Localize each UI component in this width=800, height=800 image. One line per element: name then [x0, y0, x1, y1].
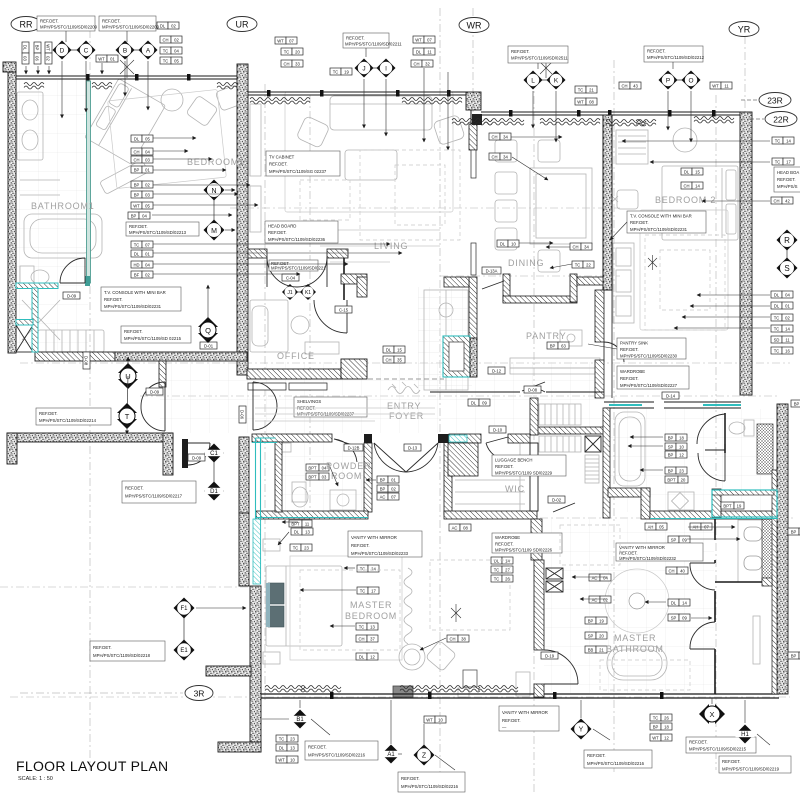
svg-text:02: 02 [145, 182, 150, 187]
svg-text:REF.DET.: REF.DET. [689, 740, 708, 745]
svg-text:DL: DL [160, 23, 166, 28]
svg-text:D-13: D-13 [408, 445, 418, 450]
svg-text:13: 13 [305, 529, 310, 534]
svg-text:D-14: D-14 [666, 393, 676, 398]
svg-text:CH: CH [133, 157, 139, 162]
svg-text:BP: BP [131, 213, 137, 218]
svg-text:REF.DET.: REF.DET. [93, 645, 112, 650]
svg-text:WT: WT [652, 735, 659, 740]
svg-text:OFFICE: OFFICE [277, 351, 315, 361]
svg-text:34: 34 [503, 154, 508, 159]
svg-text:08: 08 [463, 525, 468, 530]
svg-text:14: 14 [695, 183, 700, 188]
svg-text:MPH/PS/STC/1109/SD/02214: MPH/PS/STC/1109/SD/02214 [39, 418, 97, 423]
svg-text:REF.DET.: REF.DET. [495, 541, 514, 546]
svg-text:WT: WT [426, 717, 433, 722]
svg-text:CH: CH [668, 568, 674, 573]
svg-text:BEDROOM: BEDROOM [345, 611, 397, 621]
svg-text:REF.DET.: REF.DET. [40, 18, 59, 23]
svg-text:J1: J1 [287, 290, 293, 296]
svg-text:14: 14 [786, 138, 791, 143]
svg-text:3R: 3R [194, 689, 205, 699]
svg-text:DL: DL [23, 45, 28, 51]
svg-text:T: T [125, 412, 130, 421]
svg-text:E1: E1 [180, 648, 188, 654]
svg-text:MPH/PS/STC/1109/SD/02216: MPH/PS/STC/1109/SD/02216 [308, 753, 366, 758]
svg-text:REF.DET.: REF.DET. [630, 220, 649, 225]
svg-text:MPH/PS/STC/1109/SD/02233: MPH/PS/STC/1109/SD/02233 [351, 551, 409, 556]
svg-text:22: 22 [586, 262, 591, 267]
svg-text:MPH/PS/STC/1109/SG 02237: MPH/PS/STC/1109/SG 02237 [269, 169, 327, 174]
svg-text:WT: WT [278, 757, 285, 762]
svg-text:BPT: BPT [308, 474, 317, 479]
svg-text:09: 09 [482, 400, 487, 405]
svg-text:REF.DET.: REF.DET. [39, 411, 58, 416]
svg-text:BP: BP [668, 468, 674, 473]
svg-text:MPH/PS/STC/1109/SD/02230: MPH/PS/STC/1109/SD/02230 [620, 354, 678, 359]
svg-text:AC: AC [592, 575, 598, 580]
svg-text:—: — [502, 725, 507, 730]
svg-text:19: 19 [737, 503, 742, 508]
svg-text:DL: DL [774, 292, 780, 297]
svg-text:CH: CH [683, 183, 689, 188]
svg-text:REF.DET.: REF.DET. [620, 347, 639, 352]
svg-text:11: 11 [724, 83, 729, 88]
svg-text:TC: TC [774, 326, 780, 331]
svg-text:TC: TC [333, 69, 339, 74]
svg-text:DL: DL [671, 600, 677, 605]
svg-text:WR: WR [467, 21, 482, 31]
svg-text:BP: BP [134, 192, 140, 197]
svg-text:TC: TC [578, 87, 584, 92]
svg-text:VANITY WITH MIRROR: VANITY WITH MIRROR [619, 545, 665, 550]
svg-text:02: 02 [174, 37, 179, 42]
svg-text:A1: A1 [387, 752, 395, 758]
svg-text:04: 04 [145, 149, 150, 154]
svg-text:17: 17 [371, 588, 376, 593]
svg-text:05: 05 [145, 136, 150, 141]
svg-text:BPT: BPT [667, 477, 676, 482]
svg-text:M: M [211, 228, 217, 235]
svg-text:01: 01 [785, 303, 790, 308]
svg-text:DL: DL [416, 49, 422, 54]
svg-text:MPH/PS/STC/1109/SD/02511: MPH/PS/STC/1109/SD/02511 [511, 56, 568, 61]
svg-text:22R: 22R [773, 115, 789, 125]
svg-text:ENTRY: ENTRY [387, 401, 421, 411]
svg-text:DL: DL [494, 558, 500, 563]
svg-text:BF: BF [134, 272, 140, 277]
svg-text:VANITY WITH MIRROR: VANITY WITH MIRROR [502, 710, 548, 715]
svg-text:MPH/PS/STC/1109/SD/0221: MPH/PS/STC/1109/SD/0221 [271, 265, 326, 270]
svg-text:13: 13 [370, 624, 375, 629]
svg-text:04: 04 [785, 292, 790, 297]
svg-text:REF.DET.: REF.DET. [647, 49, 666, 54]
svg-text:REF.DET.: REF.DET. [502, 718, 521, 723]
svg-text:09: 09 [682, 615, 687, 620]
svg-text:18: 18 [664, 724, 669, 729]
svg-text:CH: CH [621, 83, 627, 88]
svg-text:05: 05 [174, 58, 179, 63]
svg-text:BP: BP [35, 45, 40, 51]
svg-text:09: 09 [682, 537, 687, 542]
svg-text:WT: WT [133, 203, 140, 208]
svg-text:04: 04 [603, 575, 608, 580]
svg-text:WARDROBE: WARDROBE [620, 369, 645, 374]
svg-text:MPH/PS/STC/1109/SD/02232: MPH/PS/STC/1109/SD/02232 [619, 556, 677, 561]
svg-text:21: 21 [599, 647, 604, 652]
svg-text:WT: WT [712, 83, 719, 88]
svg-text:P: P [666, 77, 670, 84]
svg-text:34: 34 [584, 244, 589, 249]
svg-text:D-08: D-08 [84, 356, 89, 366]
svg-text:MPH/PS/STC/1109/SD/02236: MPH/PS/STC/1109/SD/02236 [268, 237, 326, 242]
svg-text:WT: WT [46, 44, 51, 51]
svg-text:15: 15 [397, 347, 402, 352]
svg-text:H1: H1 [741, 732, 749, 738]
svg-text:DL: DL [684, 169, 690, 174]
svg-text:D-08: D-08 [528, 387, 538, 392]
svg-text:REF.DET.: REF.DET. [511, 49, 530, 54]
svg-text:REF.DET.: REF.DET. [269, 162, 288, 167]
svg-text:CH: CH [358, 636, 364, 641]
svg-text:FOYER: FOYER [389, 411, 424, 421]
svg-text:21: 21 [589, 87, 594, 92]
svg-text:MPH/PS/STC/1109/SD/02216: MPH/PS/STC/1109/SD/02216 [401, 784, 459, 789]
svg-text:X: X [709, 710, 714, 719]
svg-text:MPH/PS/STC/1109 SD/02229: MPH/PS/STC/1109 SD/02229 [495, 471, 553, 476]
svg-text:VANITY WITH MIRROR: VANITY WITH MIRROR [351, 535, 397, 540]
svg-text:19: 19 [599, 618, 604, 623]
svg-text:C-04: C-04 [286, 275, 296, 280]
svg-text:04: 04 [174, 48, 179, 53]
svg-text:19: 19 [344, 69, 349, 74]
svg-text:02: 02 [785, 315, 790, 320]
svg-text:DL: DL [134, 136, 140, 141]
svg-text:RR: RR [20, 20, 33, 30]
svg-text:38: 38 [461, 636, 466, 641]
svg-text:02: 02 [603, 597, 608, 602]
svg-text:17: 17 [786, 159, 791, 164]
svg-text:CH: CH [491, 134, 497, 139]
svg-text:BPT: BPT [723, 503, 732, 508]
svg-text:C-15: C-15 [339, 307, 349, 312]
svg-text:01: 01 [391, 477, 396, 482]
svg-text:37: 37 [370, 636, 375, 641]
svg-text:06: 06 [35, 56, 40, 61]
svg-text:REF.DET.: REF.DET. [620, 376, 639, 381]
svg-text:MPH/PS/STC/1109/SD 02215: MPH/PS/STC/1109/SD 02215 [124, 336, 182, 341]
svg-text:MPH/PS/STC/1109/SD/02218: MPH/PS/STC/1109/SD/02218 [93, 653, 151, 658]
svg-text:TC: TC [293, 545, 299, 550]
svg-text:12: 12 [370, 654, 375, 659]
svg-text:REF.DET.: REF.DET. [102, 18, 121, 23]
svg-text:BPT: BPT [308, 465, 317, 470]
svg-text:MPH/PS/STC/1109/SD/02231: MPH/PS/STC/1109/SD/02231 [630, 227, 688, 232]
svg-text:TC: TC [774, 348, 780, 353]
svg-text:REF.DET.: REF.DET. [125, 486, 144, 491]
svg-text:F1: F1 [180, 606, 188, 612]
svg-text:35: 35 [397, 357, 402, 362]
svg-text:42: 42 [785, 198, 790, 203]
svg-text:DL: DL [500, 241, 506, 246]
svg-text:15: 15 [695, 169, 700, 174]
svg-text:MPH/PS/STC/1109/SD/02213: MPH/PS/STC/1109/SD/02213 [129, 230, 187, 235]
svg-text:05: 05 [659, 524, 664, 529]
svg-text:SP: SP [671, 615, 677, 620]
svg-text:REF.DET.: REF.DET. [124, 329, 143, 334]
svg-text:03: 03 [23, 56, 28, 61]
svg-text:REF.DET.: REF.DET. [495, 464, 514, 469]
svg-text:WT: WT [415, 37, 422, 42]
svg-text:REF.DET.: REF.DET. [777, 177, 796, 182]
svg-text:SD: SD [774, 337, 780, 342]
svg-text:CH: CH [133, 149, 139, 154]
svg-text:CH: CH [773, 198, 779, 203]
svg-text:BEDROOM1: BEDROOM1 [187, 157, 245, 167]
svg-text:43: 43 [633, 83, 638, 88]
svg-text:MPH/PS/STC/1109 SD/02226: MPH/PS/STC/1109 SD/02226 [495, 548, 553, 553]
svg-text:C1: C1 [210, 451, 218, 457]
svg-text:CH: CH [385, 357, 391, 362]
svg-text:BP: BP [134, 182, 140, 187]
svg-text:R: R [784, 236, 790, 245]
svg-text:10: 10 [679, 444, 684, 449]
svg-text:D-01: D-01 [204, 343, 214, 348]
svg-text:D-19: D-19 [545, 653, 555, 658]
svg-text:DL: DL [279, 745, 285, 750]
svg-text:16: 16 [785, 348, 790, 353]
svg-text:REF.DET.: REF.DET. [619, 551, 638, 556]
svg-text:01: 01 [145, 167, 150, 172]
svg-text:SCALE: 1 : 50: SCALE: 1 : 50 [18, 776, 53, 782]
svg-text:BP: BP [668, 452, 674, 457]
svg-text:T.V. CONSOLE WITH MINI BAR: T.V. CONSOLE WITH MINI BAR [630, 214, 692, 219]
svg-text:MPH/PS/STC/1109/SD/02217: MPH/PS/STC/1109/SD/02217 [125, 494, 183, 499]
svg-text:23: 23 [290, 736, 295, 741]
svg-text:AC: AC [592, 597, 598, 602]
svg-text:B1: B1 [296, 717, 304, 723]
svg-text:TC: TC [494, 567, 500, 572]
svg-text:BP: BP [794, 401, 800, 406]
svg-text:D-02: D-02 [552, 497, 562, 502]
svg-text:18: 18 [679, 435, 684, 440]
svg-text:TC: TC [774, 315, 780, 320]
svg-text:63: 63 [561, 343, 566, 348]
svg-text:O: O [688, 77, 693, 84]
svg-text:I: I [385, 65, 387, 72]
svg-text:SP: SP [671, 537, 677, 542]
svg-text:MPH/PS/S: MPH/PS/S [777, 184, 798, 189]
svg-text:04: 04 [142, 213, 147, 218]
svg-text:CH: CH [491, 154, 497, 159]
svg-text:07: 07 [391, 494, 396, 499]
svg-text:08: 08 [589, 99, 594, 104]
svg-text:WARDROBE: WARDROBE [495, 535, 520, 540]
svg-text:03: 03 [322, 474, 327, 479]
svg-text:TC: TC [775, 159, 781, 164]
svg-text:24: 24 [371, 566, 376, 571]
svg-text:10: 10 [290, 757, 295, 762]
svg-text:D-09: D-09 [67, 293, 77, 298]
svg-text:A: A [146, 47, 151, 54]
svg-text:HEAD BOARD: HEAD BOARD [268, 224, 296, 229]
svg-text:D-12B: D-12B [348, 445, 360, 450]
svg-text:TC: TC [360, 588, 366, 593]
svg-text:MPH/PS/STC/1109/SD/02216: MPH/PS/STC/1109/SD/02216 [587, 761, 645, 766]
svg-text:D1: D1 [210, 489, 218, 495]
svg-text:D-13A: D-13A [486, 268, 498, 273]
svg-text:DINING: DINING [508, 258, 544, 268]
svg-text:20: 20 [599, 633, 604, 638]
svg-text:DL: DL [359, 654, 365, 659]
svg-text:SP: SP [588, 633, 594, 638]
svg-text:MPH/PS/STC/1109/SD/02209: MPH/PS/STC/1109/SD/02209 [102, 25, 160, 30]
svg-text:01: 01 [110, 56, 115, 61]
svg-text:UR: UR [236, 20, 249, 30]
svg-text:CH: CH [162, 37, 168, 42]
svg-text:REF.DET.: REF.DET. [351, 543, 370, 548]
svg-text:LIVING: LIVING [374, 241, 408, 251]
svg-text:S: S [784, 264, 789, 273]
svg-text:03: 03 [145, 157, 150, 162]
svg-text:BATHROOM1: BATHROOM1 [31, 201, 95, 211]
svg-text:CH: CH [449, 636, 455, 641]
svg-text:CH: CH [413, 61, 419, 66]
svg-text:TC: TC [279, 736, 285, 741]
svg-text:TC: TC [360, 566, 366, 571]
svg-text:TC: TC [359, 624, 365, 629]
svg-text:BP: BP [380, 486, 386, 491]
svg-text:PANTRY: PANTRY [526, 331, 566, 341]
svg-text:MPH/PS/STC/1109/SD/02215: MPH/PS/STC/1109/SD/02215 [689, 747, 747, 752]
svg-text:WT: WT [277, 38, 284, 43]
svg-text:REF.DET.: REF.DET. [104, 297, 123, 302]
svg-text:TC: TC [653, 715, 659, 720]
svg-text:03: 03 [145, 192, 150, 197]
svg-text:J: J [362, 65, 365, 72]
svg-text:MPH/PS/STC/1109/SD/02227: MPH/PS/STC/1109/SD/02227 [620, 383, 678, 388]
svg-text:02: 02 [46, 56, 51, 61]
svg-text:TC: TC [575, 262, 581, 267]
svg-text:14: 14 [785, 326, 790, 331]
svg-text:BP: BP [668, 435, 674, 440]
svg-text:TV CABINET: TV CABINET [269, 154, 295, 159]
svg-text:10: 10 [438, 717, 443, 722]
svg-text:BB: BB [588, 647, 594, 652]
svg-text:REF.DET.: REF.DET. [129, 224, 148, 229]
svg-text:13: 13 [290, 745, 295, 750]
svg-text:01: 01 [145, 251, 150, 256]
svg-text:DL: DL [471, 400, 477, 405]
svg-text:BP: BP [550, 343, 556, 348]
svg-text:07: 07 [427, 37, 432, 42]
svg-text:BEDROOM 2: BEDROOM 2 [655, 195, 716, 205]
svg-text:20: 20 [681, 477, 686, 482]
svg-text:BP: BP [588, 618, 594, 623]
svg-text:10: 10 [511, 241, 516, 246]
svg-text:L: L [531, 77, 535, 84]
svg-text:REF.DET.: REF.DET. [346, 35, 365, 40]
svg-text:REF.DET.: REF.DET. [268, 230, 287, 235]
svg-text:HEAD BOA: HEAD BOA [777, 170, 799, 175]
svg-text:20: 20 [295, 49, 300, 54]
svg-text:ROOM: ROOM [331, 471, 362, 481]
svg-text:BP: BP [791, 529, 797, 534]
svg-text:C: C [84, 47, 89, 54]
svg-text:REF.DET.: REF.DET. [308, 745, 327, 750]
svg-text:D-10: D-10 [493, 427, 503, 432]
svg-text:BP: BP [653, 724, 659, 729]
svg-text:DL: DL [386, 347, 392, 352]
svg-text:23R: 23R [767, 96, 783, 106]
svg-text:MASTER: MASTER [614, 633, 656, 643]
svg-text:TC: TC [494, 576, 500, 581]
svg-text:TC: TC [163, 58, 169, 63]
svg-text:AC: AC [452, 525, 458, 530]
svg-text:BP: BP [791, 653, 797, 658]
svg-text:Y: Y [579, 727, 584, 734]
svg-text:34: 34 [503, 134, 508, 139]
svg-text:CH: CH [572, 244, 578, 249]
svg-text:K: K [554, 77, 559, 84]
svg-text:MPH/PS/STC/1109/SD/02211: MPH/PS/STC/1109/SD/02211 [345, 42, 402, 47]
svg-text:Q: Q [205, 326, 211, 335]
svg-text:MPH/PS/STC/1109/SD/02209: MPH/PS/STC/1109/SD/02209 [40, 25, 98, 30]
svg-text:D-12: D-12 [492, 368, 502, 373]
svg-text:BP: BP [134, 167, 140, 172]
svg-text:TC: TC [163, 48, 169, 53]
svg-text:DL: DL [294, 529, 300, 534]
svg-text:04: 04 [145, 262, 150, 267]
svg-text:MASTER: MASTER [350, 600, 392, 610]
svg-text:DL: DL [774, 303, 780, 308]
svg-text:14: 14 [682, 600, 687, 605]
svg-text:SP: SP [668, 444, 674, 449]
svg-text:MPH/PS/STC/1109/SD/02231: MPH/PS/STC/1109/SD/02231 [104, 304, 162, 309]
svg-text:BATHROOM: BATHROOM [606, 644, 664, 654]
svg-text:WIC: WIC [505, 484, 525, 494]
svg-text:SHELVINGS: SHELVINGS [297, 399, 321, 404]
svg-text:23: 23 [679, 468, 684, 473]
svg-text:23: 23 [304, 545, 309, 550]
svg-text:11: 11 [785, 337, 790, 342]
svg-text:33: 33 [295, 61, 300, 66]
svg-text:POWDER: POWDER [326, 461, 371, 471]
svg-text:07: 07 [145, 242, 150, 247]
svg-text:11: 11 [427, 49, 432, 54]
svg-text:12: 12 [664, 735, 669, 740]
svg-text:11: 11 [305, 521, 310, 526]
svg-text:PANTRY SINK: PANTRY SINK [620, 341, 648, 346]
svg-text:D: D [60, 47, 65, 54]
svg-text:05: 05 [145, 203, 150, 208]
svg-text:DL: DL [134, 251, 140, 256]
svg-text:CH: CH [283, 61, 289, 66]
svg-text:MPH/PS/STC/1109/SD/02212: MPH/PS/STC/1109/SD/02212 [647, 55, 705, 60]
svg-text:TC: TC [134, 242, 140, 247]
svg-text:REF.DET.: REF.DET. [722, 759, 741, 764]
svg-text:TC: TC [284, 49, 290, 54]
svg-text:YR: YR [738, 25, 751, 35]
svg-text:AC: AC [380, 494, 386, 499]
svg-text:BP: BP [380, 477, 386, 482]
svg-text:MPH/PS/STC/1109/SD/02219: MPH/PS/STC/1109/SD/02219 [722, 767, 780, 772]
svg-text:12: 12 [679, 452, 684, 457]
svg-text:REF.DET.: REF.DET. [401, 776, 420, 781]
svg-text:02: 02 [145, 272, 150, 277]
svg-text:WT: WT [98, 56, 105, 61]
svg-text:D-09: D-09 [150, 389, 160, 394]
